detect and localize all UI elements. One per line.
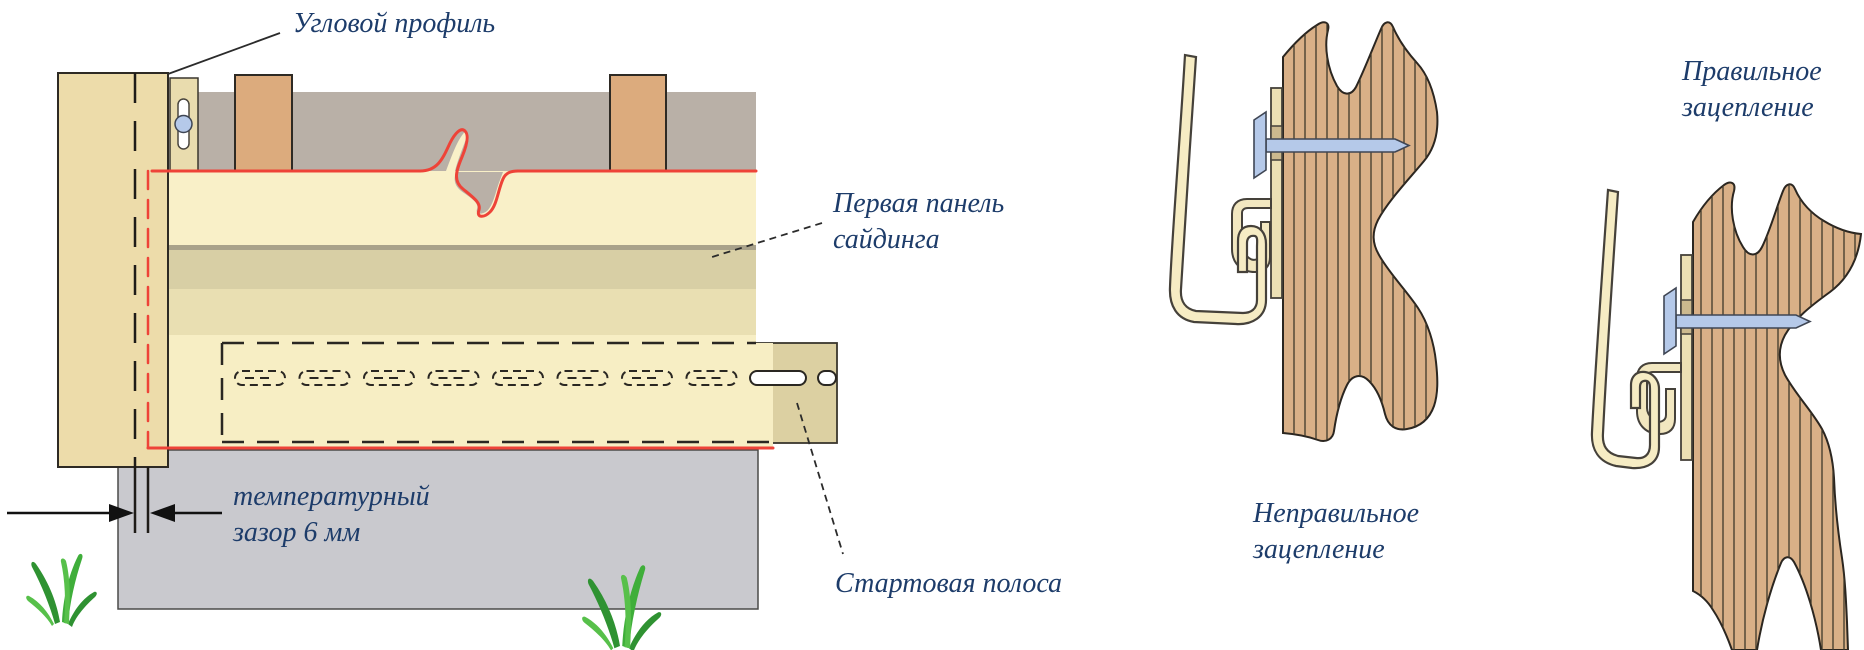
corner-profile [58, 73, 168, 467]
nail-icon [175, 116, 192, 133]
visible-nail-slot [818, 371, 836, 385]
foundation [118, 450, 758, 609]
wall-stud [235, 75, 292, 175]
first-panel-label: Первая панель сайдинга [833, 186, 1004, 258]
wood-plank [1693, 183, 1861, 650]
incorrect-engagement-diagram [1170, 20, 1438, 450]
first-panel-label-line2: сайдинга [833, 222, 1004, 258]
siding-panel-hook [1170, 55, 1266, 324]
correct-engagement-label: Правильное зацепление [1682, 54, 1822, 126]
corner-profile-label: Угловой профиль [293, 6, 495, 42]
wall-stud [610, 75, 666, 175]
visible-nail-slot [750, 371, 806, 385]
temperature-gap-label-line1: температурный [233, 479, 430, 515]
nail-shaft [1266, 139, 1409, 152]
grass-icon [26, 554, 97, 627]
first-panel-label-line1: Первая панель [833, 186, 1004, 222]
first-siding-panel [152, 171, 773, 448]
temperature-gap-label-line2: зазор 6 мм [233, 515, 430, 551]
siding-installation-figure: Угловой профиль Первая панель сайдинга т… [0, 0, 1864, 650]
nail-shaft [1676, 315, 1810, 328]
incorrect-engagement-label-line2: зацепление [1253, 532, 1419, 568]
correct-engagement-label-line2: зацепление [1682, 90, 1822, 126]
incorrect-engagement-label: Неправильное зацепление [1253, 496, 1419, 568]
correct-engagement-label-line1: Правильное [1682, 54, 1822, 90]
corner-profile-flange [170, 78, 198, 173]
starter-strip-flange [1681, 255, 1692, 460]
temperature-gap-label: температурный зазор 6 мм [233, 479, 430, 551]
figure-artwork [0, 0, 1864, 650]
starter-strip-flange [1271, 88, 1282, 298]
starter-strip-label: Стартовая полоса [835, 566, 1062, 602]
left-installation-diagram [7, 33, 843, 650]
incorrect-engagement-label-line1: Неправильное [1253, 496, 1419, 532]
siding-panel-hook [1592, 190, 1659, 468]
nail-head [1254, 112, 1266, 178]
corner-profile-leader [168, 33, 280, 74]
correct-engagement-diagram [1592, 180, 1861, 650]
nail-head [1664, 288, 1676, 354]
